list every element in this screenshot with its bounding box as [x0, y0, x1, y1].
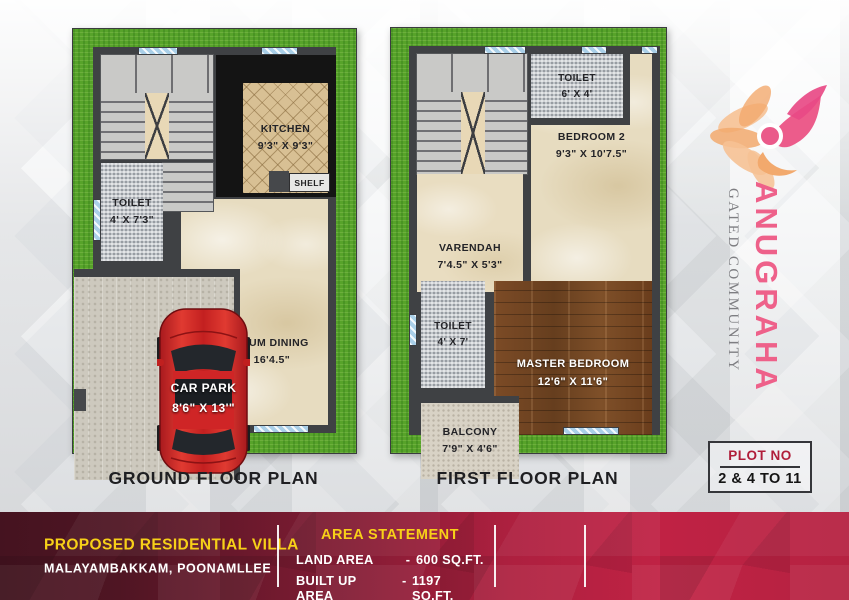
room-varendah: VARENDAH 7'4.5" X 5'3"	[417, 174, 523, 292]
window-left	[93, 199, 101, 241]
room-dims: 4' X 7'	[438, 337, 469, 348]
stair-divider-x	[461, 92, 485, 174]
room-dims: 6' X 4'	[562, 89, 593, 100]
area-separator: -	[397, 573, 412, 600]
window-left	[409, 314, 417, 346]
shelf-wall-stub	[269, 171, 289, 192]
room-name: BALCONY	[443, 427, 498, 439]
toilet-top-label: TOILET 6' X 4'	[531, 54, 623, 118]
anugraha-flower-logo	[703, 74, 843, 189]
room-dims: 4' X 7'3"	[110, 215, 154, 227]
room-name: MASTER BEDROOM	[517, 358, 630, 370]
room-toilet-first-top: TOILET 6' X 4'	[531, 54, 630, 125]
room-name: VARENDAH	[439, 243, 501, 255]
ground-floor-title: GROUND FLOOR PLAN	[72, 468, 355, 489]
stair-flight-right	[485, 92, 527, 174]
stair-landing	[101, 55, 213, 93]
stair-flight-right	[169, 93, 213, 159]
room-dims: 7'9" X 4'6"	[442, 444, 498, 456]
stair-divider-x	[145, 93, 169, 159]
project-title: PROPOSED RESIDENTIAL VILLA	[44, 537, 299, 555]
plot-number-box: PLOT NO 2 & 4 TO 11	[708, 441, 812, 493]
room-dims: 9'3" X 9'3"	[258, 141, 314, 153]
area-value: 1197 SQ.FT.	[412, 573, 484, 600]
footer-band: PROPOSED RESIDENTIAL VILLA MALAYAMBAKKAM…	[0, 512, 849, 600]
car-top-view: CAR PARK 8'6" X 13'"	[157, 307, 250, 475]
room-dims: 8'6" X 13'"	[172, 401, 235, 415]
window-top-2	[581, 46, 607, 54]
plot-divider-line	[720, 466, 800, 468]
shelf: SHELF	[289, 173, 330, 192]
area-separator: -	[400, 552, 416, 567]
room-dims: 12'6" X 11'6"	[538, 376, 608, 388]
area-row-land: LAND AREA - 600 SQ.FT.	[296, 552, 484, 567]
plot-value: 2 & 4 TO 11	[718, 471, 801, 487]
area-statement-title: AREA STATEMENT	[296, 527, 484, 543]
stair-landing	[417, 54, 527, 92]
window-bottom	[563, 427, 619, 435]
ground-staircase	[101, 55, 213, 159]
footer-divider-1	[277, 525, 279, 587]
room-toilet-ground: TOILET 4' X 7'3"	[101, 163, 163, 261]
floor-plan-poster: LIVING CUM DINING 9'3" X 16'4.5" KITCHEN…	[0, 0, 849, 600]
room-name: TOILET	[434, 321, 472, 332]
brand-name-vertical: ANUGRAHA	[748, 181, 784, 394]
project-location: MALAYAMBAKKAM, POONAMLLEE	[44, 562, 299, 576]
room-name: TOILET	[558, 73, 596, 84]
varendah-label: VARENDAH 7'4.5" X 5'3"	[417, 174, 523, 292]
room-dims: 7'4.5" X 5'3"	[437, 260, 502, 272]
first-staircase	[417, 54, 527, 174]
window-top-1	[484, 46, 526, 54]
first-floor-title: FIRST FLOOR PLAN	[390, 468, 665, 489]
room-name: BEDROOM 2	[558, 132, 625, 144]
area-label: BUILT UP AREA	[296, 573, 397, 600]
first-building-walls: BEDROOM 2 9'3" X 10'7.5" TOILET 6' X 4' …	[409, 46, 660, 435]
stair-flight-left	[417, 92, 461, 174]
area-label: LAND AREA	[296, 552, 400, 567]
room-name: CAR PARK	[171, 381, 237, 395]
shelf-label: SHELF	[294, 178, 324, 188]
toilet-label: TOILET 4' X 7'3"	[101, 163, 163, 261]
room-balcony: BALCONY 7'9" X 4'6"	[421, 396, 519, 479]
area-value: 600 SQ.FT.	[416, 552, 484, 567]
room-dims: 9'3" X 10'7.5"	[556, 149, 627, 161]
window-top-2	[261, 47, 298, 55]
brand-tagline-vertical: GATED COMMUNITY	[724, 188, 741, 373]
car-park-label: CAR PARK 8'6" X 13'"	[145, 381, 262, 415]
area-statement: AREA STATEMENT LAND AREA - 600 SQ.FT. BU…	[296, 527, 484, 600]
ground-floor-plan: LIVING CUM DINING 9'3" X 16'4.5" KITCHEN…	[72, 28, 357, 454]
ground-staircase-lower-flight	[163, 163, 213, 211]
car-park-gate-stub	[74, 389, 86, 411]
window-top-1	[138, 47, 178, 55]
first-floor-plan: BEDROOM 2 9'3" X 10'7.5" TOILET 6' X 4' …	[390, 27, 667, 454]
room-name: TOILET	[112, 198, 152, 210]
footer-divider-2	[494, 525, 496, 587]
window-top-3	[641, 46, 658, 54]
project-info: PROPOSED RESIDENTIAL VILLA MALAYAMBAKKAM…	[44, 537, 299, 576]
room-toilet-first-left: TOILET 4' X 7'	[421, 281, 485, 388]
stair-flight-left	[101, 93, 145, 159]
room-car-park: CAR PARK 8'6" X 13'"	[74, 269, 240, 480]
area-row-builtup: BUILT UP AREA - 1197 SQ.FT.	[296, 573, 484, 600]
window-bottom	[253, 425, 309, 433]
room-name: KITCHEN	[261, 124, 310, 136]
plot-label: PLOT NO	[728, 448, 792, 463]
toilet-left-label: TOILET 4' X 7'	[421, 281, 485, 388]
footer-divider-3	[584, 525, 586, 587]
